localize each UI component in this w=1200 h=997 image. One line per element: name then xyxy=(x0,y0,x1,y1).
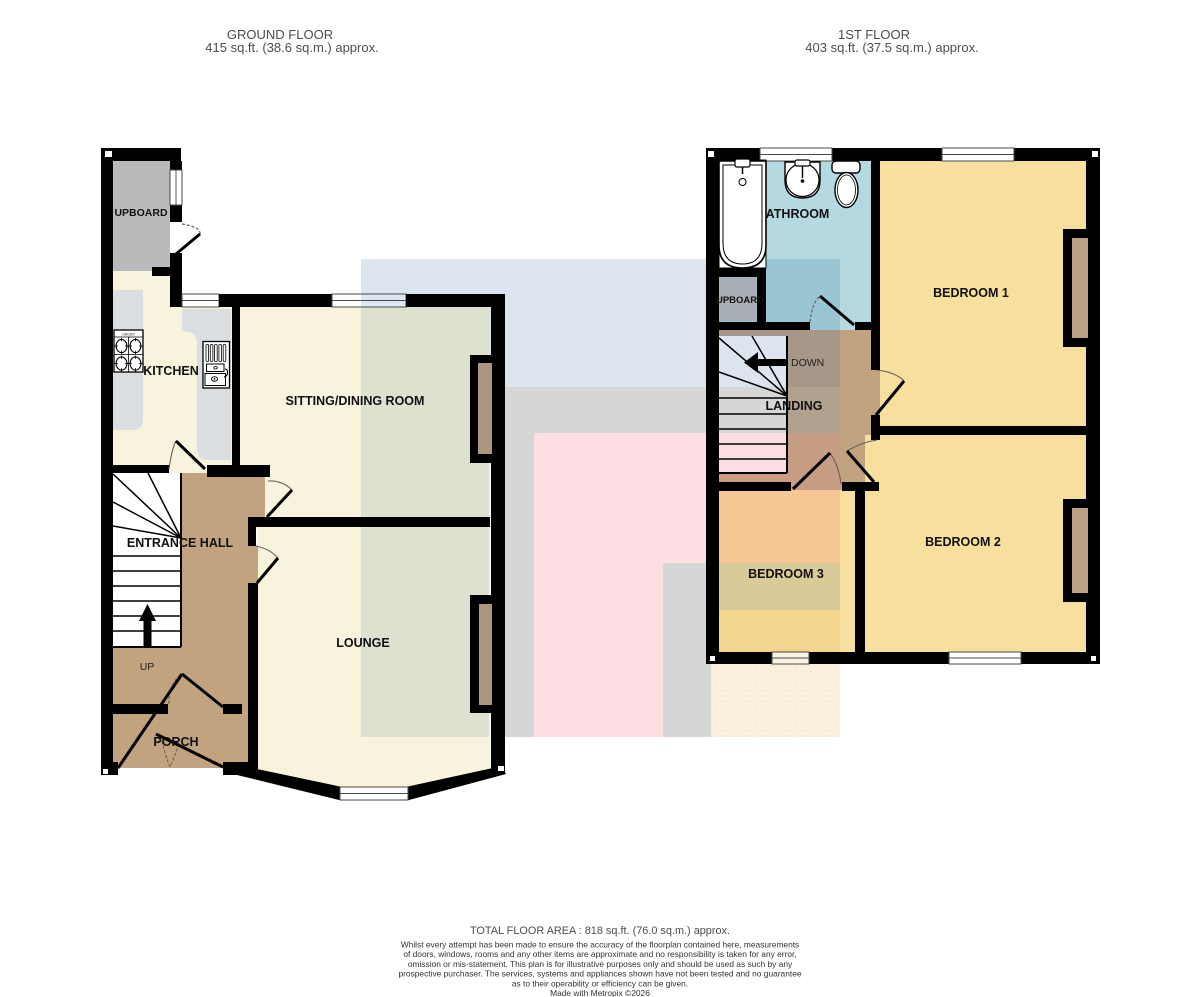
svg-text:403 sq.ft. (37.5 sq.m.) approx: 403 sq.ft. (37.5 sq.m.) approx. xyxy=(805,40,978,55)
svg-text:SITTING/DINING ROOM: SITTING/DINING ROOM xyxy=(286,394,425,408)
svg-text:LOUNGE: LOUNGE xyxy=(336,636,389,650)
svg-text:of doors, windows, rooms and a: of doors, windows, rooms and any other i… xyxy=(403,949,796,959)
svg-text:415 sq.ft. (38.6 sq.m.) approx: 415 sq.ft. (38.6 sq.m.) approx. xyxy=(205,40,378,55)
svg-text:Whilst every attempt has been: Whilst every attempt has been made to en… xyxy=(401,939,800,949)
svg-text:ENTRANCE HALL: ENTRANCE HALL xyxy=(127,536,234,550)
svg-text:PORCH: PORCH xyxy=(153,735,198,749)
svg-text:prospective purchaser. The ser: prospective purchaser. The services, sys… xyxy=(398,969,801,979)
svg-text:TOTAL FLOOR AREA : 818 sq.ft.: TOTAL FLOOR AREA : 818 sq.ft. (76.0 sq.m… xyxy=(470,925,730,937)
svg-text:DOWN: DOWN xyxy=(791,357,824,369)
svg-text:UPBOARD: UPBOARD xyxy=(716,295,764,306)
svg-text:BEDROOM 3: BEDROOM 3 xyxy=(748,567,824,581)
svg-text:omission or mis-statement. Thi: omission or mis-statement. This plan is … xyxy=(408,959,793,969)
svg-text:UPBOARD: UPBOARD xyxy=(114,207,168,219)
svg-text:UP: UP xyxy=(140,661,155,673)
svg-text:BEDROOM 1: BEDROOM 1 xyxy=(933,286,1009,300)
svg-text:LANDING: LANDING xyxy=(766,399,823,413)
svg-text:as to their operability or eff: as to their operability or efficiency ca… xyxy=(512,978,688,988)
svg-text:ooooo: ooooo xyxy=(122,332,135,337)
svg-text:KITCHEN: KITCHEN xyxy=(143,364,199,378)
svg-text:Made with Metropix ©2026: Made with Metropix ©2026 xyxy=(550,988,650,997)
svg-text:BATHROOM: BATHROOM xyxy=(757,207,830,221)
svg-text:BEDROOM 2: BEDROOM 2 xyxy=(925,535,1001,549)
